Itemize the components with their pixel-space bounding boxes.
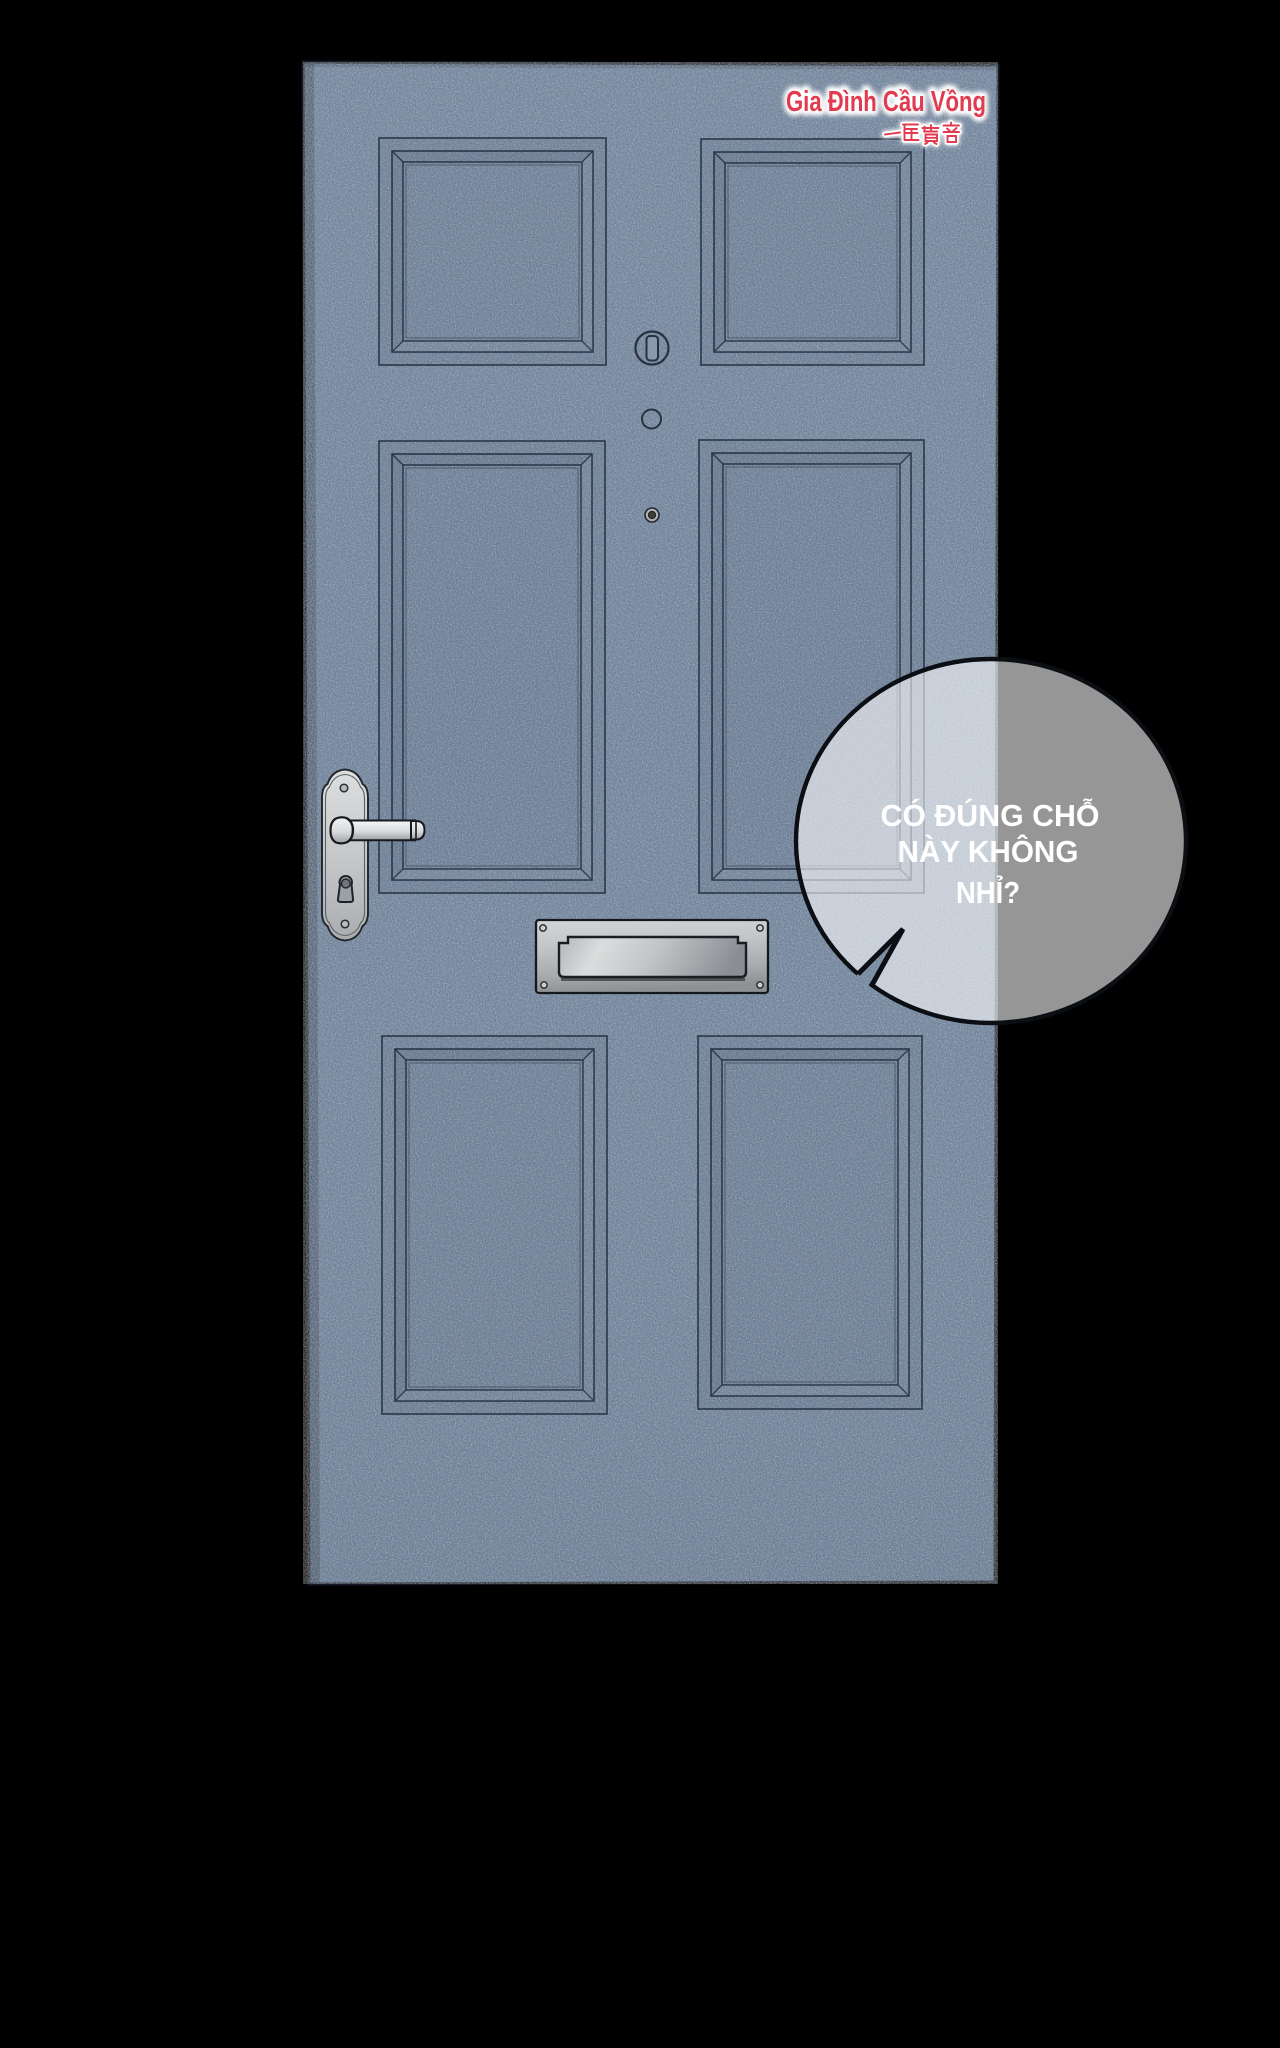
svg-text:NHỈ?: NHỈ?	[956, 875, 1020, 910]
svg-text:Gia Đình Cầu Vồng: Gia Đình Cầu Vồng	[786, 86, 986, 118]
svg-text:CÓ ĐÚNG CHỖ: CÓ ĐÚNG CHỖ	[881, 797, 1100, 833]
svg-text:NÀY KHÔNG: NÀY KHÔNG	[898, 833, 1079, 869]
